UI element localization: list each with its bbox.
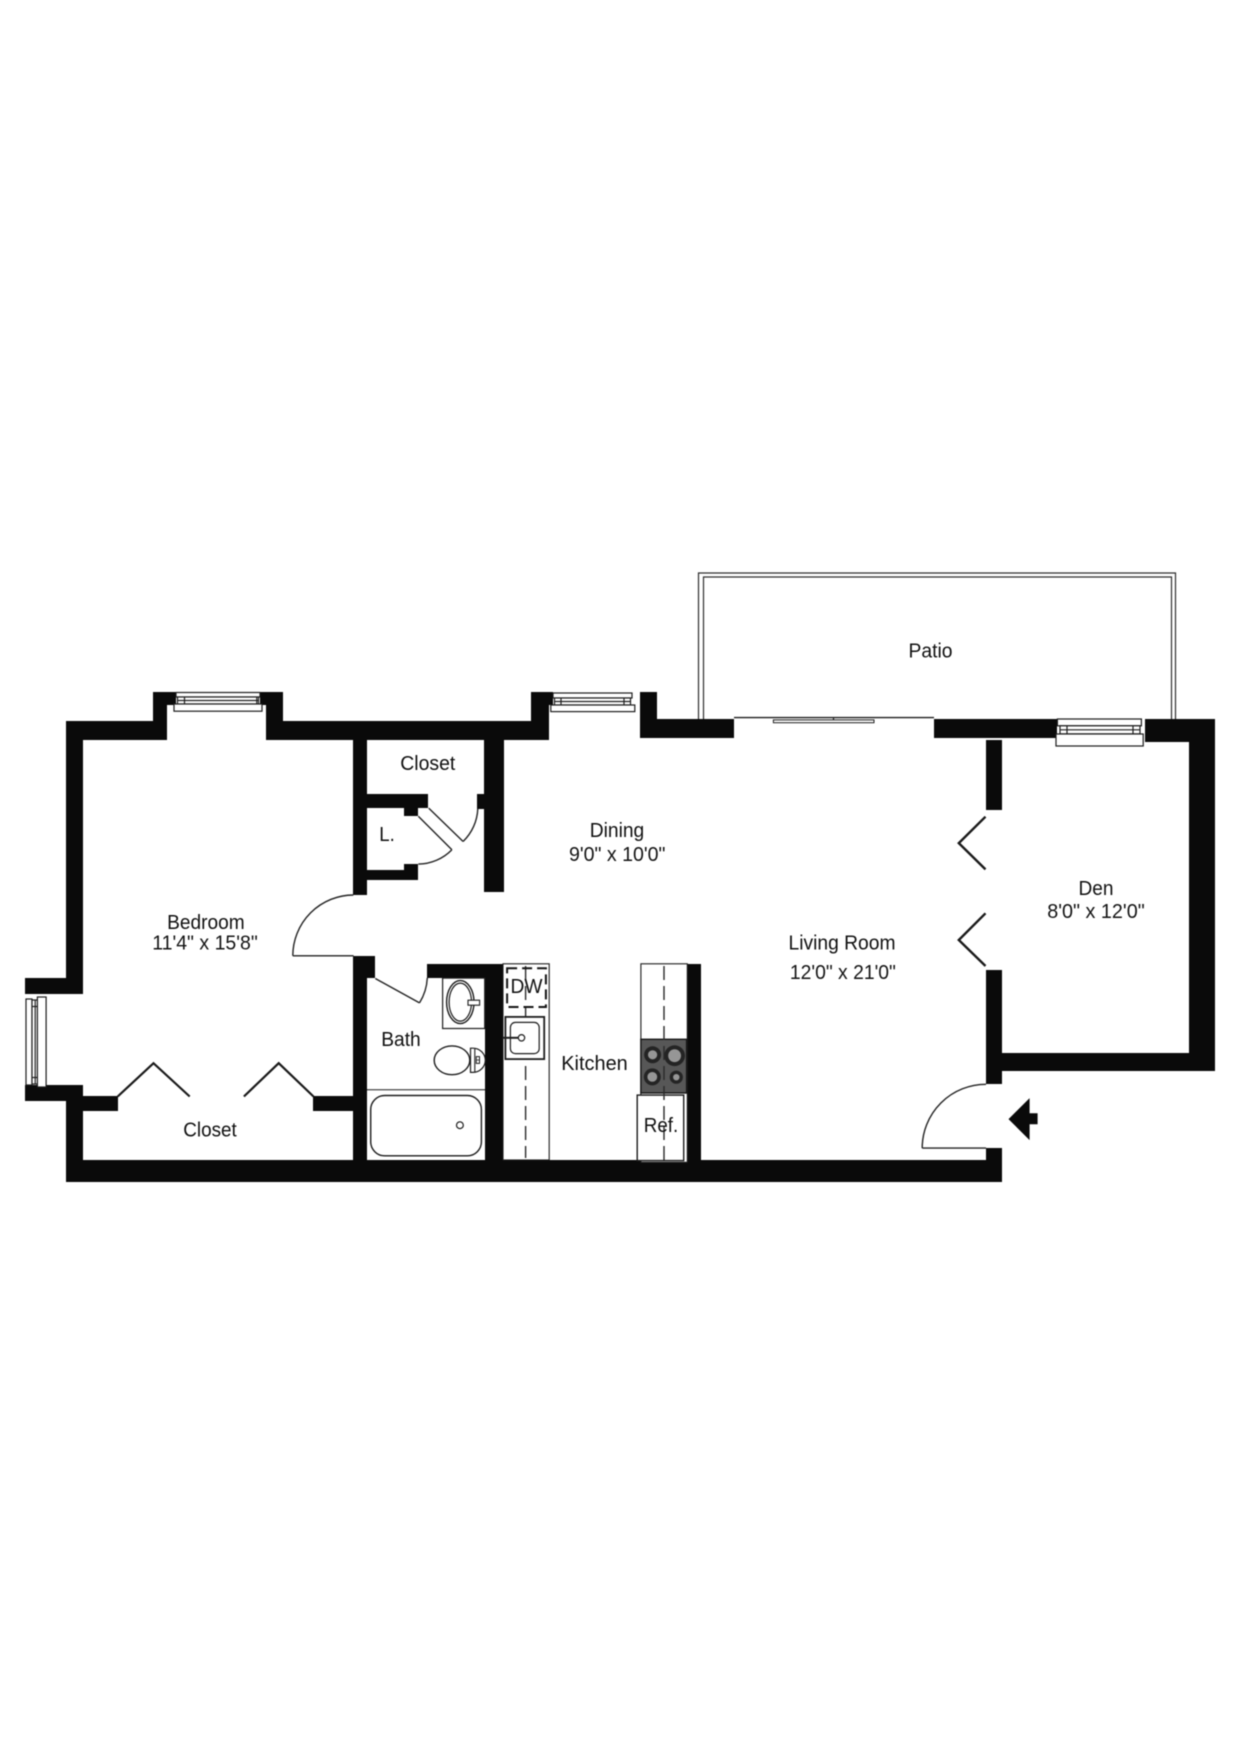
svg-text:Dining: Dining bbox=[590, 820, 645, 842]
svg-text:DW: DW bbox=[511, 976, 543, 998]
svg-text:12'0" x 21'0": 12'0" x 21'0" bbox=[790, 962, 896, 984]
svg-text:8'0" x 12'0": 8'0" x 12'0" bbox=[1047, 901, 1145, 923]
svg-text:9'0" x 10'0": 9'0" x 10'0" bbox=[569, 844, 666, 866]
svg-text:Closet: Closet bbox=[400, 753, 455, 775]
svg-text:Closet: Closet bbox=[183, 1120, 237, 1142]
svg-text:Den: Den bbox=[1079, 878, 1114, 900]
svg-text:L.: L. bbox=[379, 824, 395, 846]
svg-text:Living Room: Living Room bbox=[789, 932, 896, 954]
svg-text:Patio: Patio bbox=[909, 641, 953, 663]
svg-text:Ref.: Ref. bbox=[644, 1115, 679, 1137]
svg-text:Bedroom: Bedroom bbox=[167, 912, 245, 934]
svg-text:Bath: Bath bbox=[381, 1029, 421, 1051]
svg-text:Kitchen: Kitchen bbox=[561, 1053, 628, 1075]
svg-text:11'4" x 15'8": 11'4" x 15'8" bbox=[152, 933, 258, 955]
